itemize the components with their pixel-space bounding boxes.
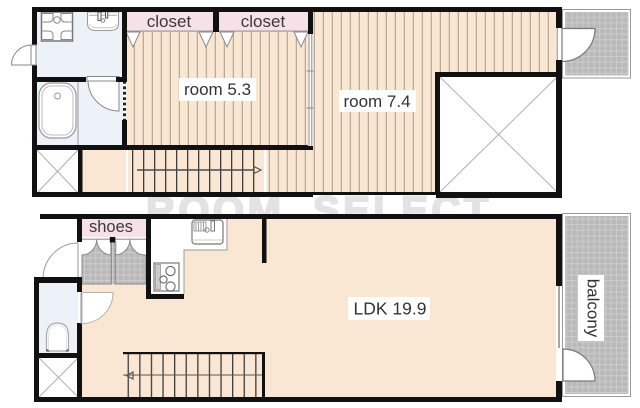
svg-text:room 7.4: room 7.4	[343, 92, 410, 111]
svg-text:room 5.3: room 5.3	[184, 80, 251, 99]
svg-text:LDK 19.9: LDK 19.9	[354, 299, 427, 319]
svg-text:balcony: balcony	[584, 279, 603, 338]
svg-text:shoes: shoes	[89, 218, 133, 236]
svg-text:closet: closet	[241, 12, 286, 31]
svg-text:closet: closet	[147, 12, 192, 31]
